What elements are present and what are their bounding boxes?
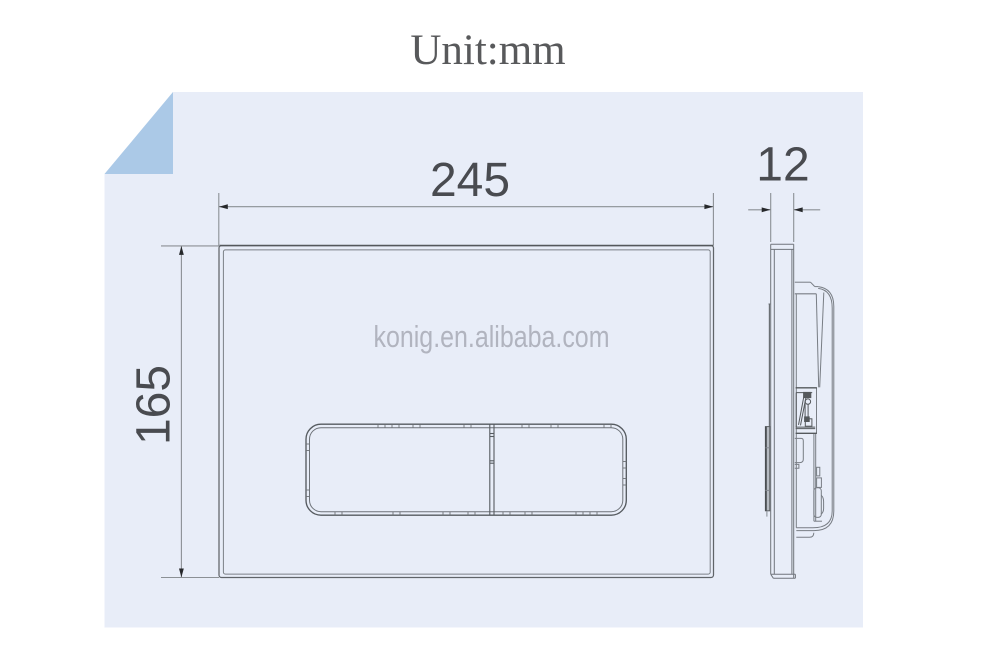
svg-text:165: 165 [128,365,181,445]
svg-text:konig.en.alibaba.com: konig.en.alibaba.com [374,319,610,354]
svg-text:12: 12 [756,139,809,192]
svg-text:Unit:mm: Unit:mm [410,27,565,74]
svg-text:245: 245 [430,154,510,207]
